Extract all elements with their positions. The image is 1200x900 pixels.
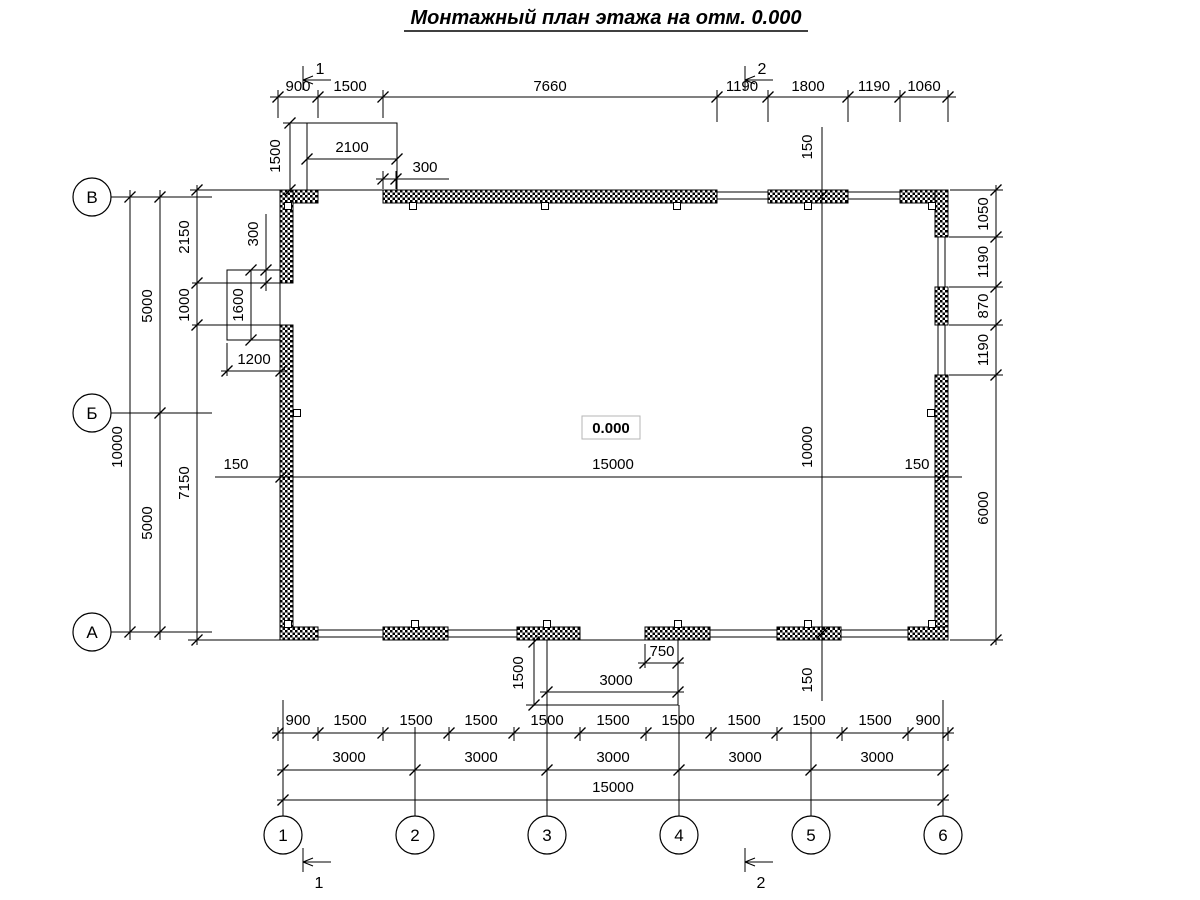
dim-label: 1500 (399, 712, 432, 729)
dim-label: 150 (799, 667, 816, 692)
section-mark-2-bottom: 2 (745, 848, 773, 892)
dim-label: 3000 (728, 749, 761, 766)
section-label: 2 (758, 61, 767, 78)
dim-label: 1200 (237, 351, 270, 368)
left-porch: 1600 300 1200 (221, 214, 287, 377)
dim-label: 7150 (176, 466, 193, 499)
dim-label: 15000 (592, 779, 634, 796)
axis-label: 4 (674, 826, 683, 845)
dim-label: 1500 (596, 712, 629, 729)
top-porch: 1500 2100 300 (267, 118, 449, 196)
dim-label: 1500 (464, 712, 497, 729)
dim-label: 1500 (267, 139, 284, 172)
axis-label: 5 (806, 826, 815, 845)
dim-label: 3000 (464, 749, 497, 766)
dim-label: 900 (915, 712, 940, 729)
dim-label: 2150 (176, 220, 193, 253)
axis-label: В (86, 188, 97, 207)
floor-plan-drawing: Монтажный план этажа на отм. 0.000 (0, 0, 1200, 900)
dim-label: 150 (904, 456, 929, 473)
dim-label: 2100 (335, 139, 368, 156)
dim-label: 1500 (792, 712, 825, 729)
dim-label: 15000 (592, 456, 634, 473)
dim-label: 1190 (975, 246, 992, 278)
dim-label: 1190 (726, 78, 758, 95)
dim-row-top: 900 1500 7660 1190 1800 1190 1060 (270, 78, 956, 122)
dim-label: 1500 (858, 712, 891, 729)
dim-left: 10000 5000 5000 2150 1000 7150 (109, 185, 285, 646)
dim-label: 5000 (139, 506, 156, 539)
dim-label: 150 (223, 456, 248, 473)
axis-label: 1 (278, 826, 287, 845)
section-mark-1-bottom: 1 (303, 848, 331, 892)
dim-interior: 150 15000 150 150 10000 150 (215, 127, 962, 701)
dim-label: 1600 (230, 288, 247, 321)
dim-label: 7660 (533, 78, 566, 95)
dim-label: 3000 (596, 749, 629, 766)
axis-label: А (86, 623, 98, 642)
dim-label: 10000 (109, 426, 126, 468)
bottom-porch: 1500 3000 750 (510, 637, 684, 711)
dim-label: 1000 (176, 288, 193, 321)
elevation-mark: 0.000 (582, 416, 640, 439)
dim-label: 870 (975, 293, 992, 318)
dim-label: 1190 (858, 78, 890, 95)
dim-label: 3000 (332, 749, 365, 766)
section-label: 2 (757, 875, 766, 892)
anchor-marks (285, 203, 936, 628)
dim-label: 1500 (510, 656, 527, 689)
dim-label: 1500 (333, 712, 366, 729)
dim-label: 1500 (661, 712, 694, 729)
dim-label: 900 (285, 78, 310, 95)
row-axis-markers: В Б А (73, 178, 111, 651)
dim-label: 3000 (599, 672, 632, 689)
dim-label: 150 (799, 134, 816, 159)
dim-rows-bottom: 900 1500 1500 1500 1500 1500 1500 1500 1… (272, 712, 954, 806)
dim-label: 1500 (727, 712, 760, 729)
dim-right: 1050 1190 870 1190 6000 (949, 185, 1003, 646)
dim-label: 5000 (139, 289, 156, 322)
axis-label: 3 (542, 826, 551, 845)
dim-label: 1060 (907, 78, 940, 95)
dim-label: 1800 (791, 78, 824, 95)
windows (318, 192, 945, 637)
axis-label: Б (86, 404, 97, 423)
dim-label: 300 (412, 159, 437, 176)
page-title: Монтажный план этажа на отм. 0.000 (411, 7, 802, 29)
dim-label: 3000 (860, 749, 893, 766)
dim-label: 10000 (799, 426, 816, 468)
dim-label: 1500 (333, 78, 366, 95)
dim-label: 1190 (975, 334, 992, 366)
dim-label: 1050 (975, 197, 992, 230)
axis-label: 2 (410, 826, 419, 845)
dim-label: 900 (285, 712, 310, 729)
axis-label: 6 (938, 826, 947, 845)
elevation-value: 0.000 (592, 420, 630, 437)
section-label: 1 (315, 875, 324, 892)
dim-label: 300 (245, 221, 262, 246)
drawing-sheet: Монтажный план этажа на отм. 0.000 (0, 0, 1200, 900)
section-label: 1 (316, 61, 325, 78)
dim-label: 750 (649, 643, 674, 660)
dim-label: 6000 (975, 491, 992, 524)
walls (280, 190, 948, 640)
